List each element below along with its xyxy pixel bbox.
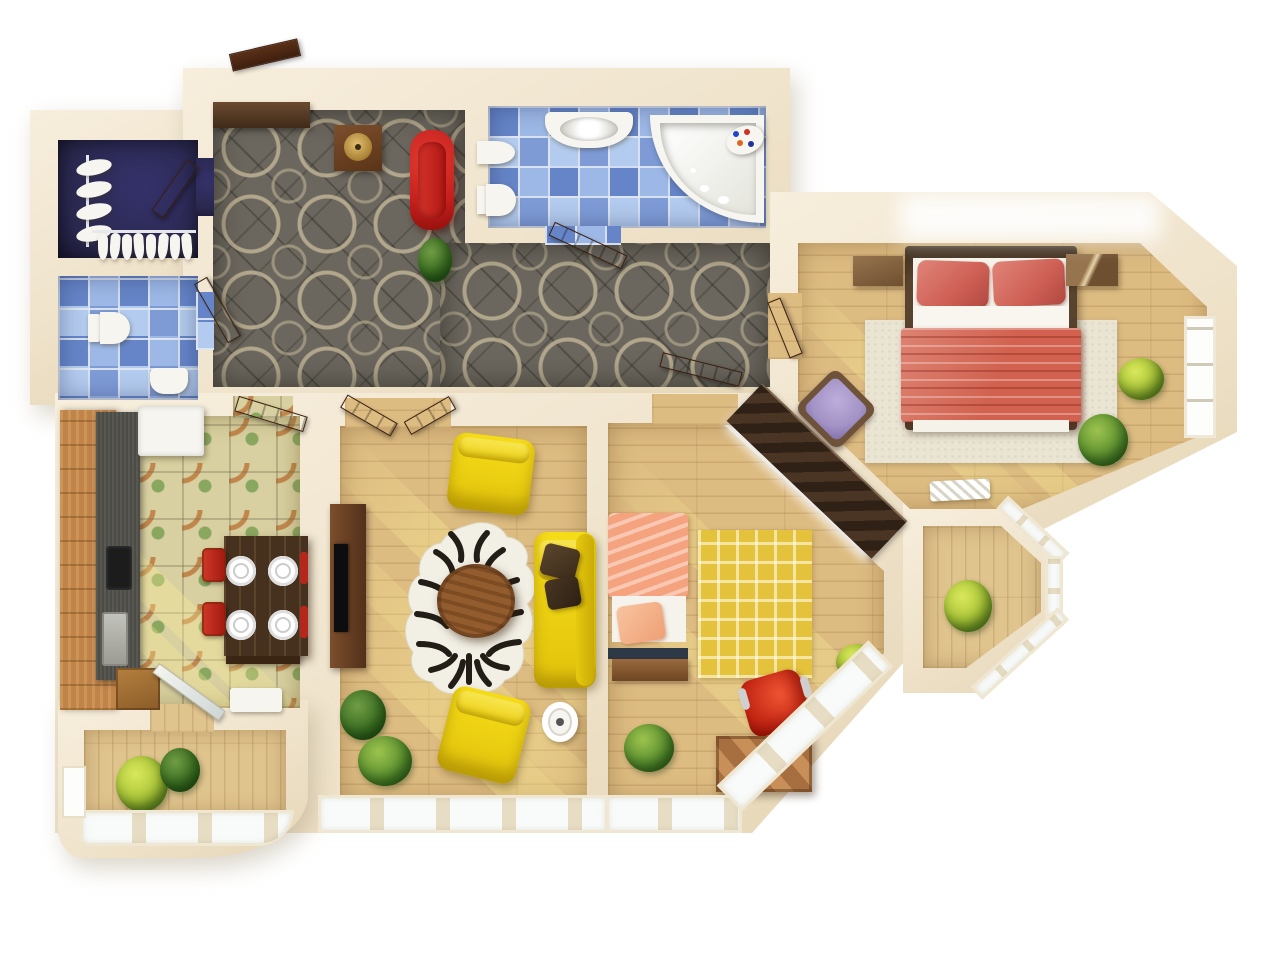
soap-dot-blue: [733, 131, 739, 137]
living-side-table-dot: [556, 718, 564, 726]
dining-plate: [268, 610, 298, 640]
dining-chair-red: [202, 602, 226, 636]
hall-plant: [418, 238, 452, 282]
kids-bed-blanket: [608, 513, 688, 598]
balcony-left-side-window: [62, 766, 86, 818]
closet-hanger: [122, 234, 132, 260]
balcony-right-window-2: [1045, 556, 1063, 618]
kids-bed-dark-rail: [608, 648, 688, 659]
closet-rail: [92, 230, 196, 233]
tv: [334, 544, 348, 632]
bed-foot-sheet: [913, 420, 1069, 432]
wc-toilet-tank: [88, 314, 100, 342]
hall-red-bench-seat: [418, 142, 446, 218]
dining-plate: [226, 556, 256, 586]
bathroom-tub-bubble: [690, 168, 696, 173]
living-plant: [340, 690, 386, 740]
bed-pillow: [992, 258, 1066, 308]
kids-bed-pillow: [616, 601, 667, 645]
kitchen-white-basin: [230, 688, 282, 712]
bathroom-tub-bubble: [718, 196, 729, 204]
bedroom-window-glow: [900, 194, 1160, 240]
nightstand-left: [853, 256, 903, 286]
bedroom-window: [1184, 316, 1216, 438]
living-room-windows: [318, 795, 608, 833]
entrance-door: [229, 38, 301, 71]
bedroom-plant-green: [1078, 414, 1128, 466]
dining-plate: [268, 556, 298, 586]
dining-chair-red: [202, 548, 226, 582]
bed-sheet-fold: [913, 306, 1069, 328]
dining-chair-red: [300, 552, 308, 584]
soap-dot-orange: [737, 140, 743, 146]
soap-dot-red: [744, 129, 750, 135]
closet-hanger: [170, 234, 180, 260]
soap-dot-navy: [748, 141, 754, 147]
dining-chair-red: [300, 606, 308, 638]
kids-room-windows: [606, 795, 742, 833]
doorway-kids: [652, 394, 738, 425]
kids-rug-yellow: [698, 530, 812, 678]
hall-brass-bowl-center: [355, 144, 361, 150]
living-round-table: [437, 564, 515, 638]
kids-bed-foot-shelf: [612, 659, 688, 681]
dining-plate: [226, 610, 256, 640]
bedroom-floor-grate: [930, 478, 991, 501]
floor-plan-render: [0, 0, 1280, 960]
closet-hanger: [98, 234, 108, 260]
kitchen-cooktop: [106, 546, 132, 590]
balcony-left-windows: [80, 810, 294, 846]
wc-sink: [150, 368, 188, 394]
balcony-right-plant: [944, 580, 992, 632]
kitchen-lower-cabinet: [116, 668, 160, 710]
hall-cabinet: [213, 102, 310, 128]
kitchen-sink: [102, 612, 128, 666]
closet-hanger: [146, 234, 156, 260]
bathroom-vanity-basin: [560, 117, 618, 141]
balcony-left-plant-green: [160, 748, 200, 792]
hall-floor-horizontal: [440, 243, 770, 387]
bathroom-bidet: [477, 141, 515, 164]
living-armchair-top: [446, 431, 537, 516]
bathroom-tub-bubble: [700, 185, 709, 192]
bed-blanket: [901, 328, 1081, 422]
nightstand-right: [1066, 254, 1118, 286]
living-plant: [358, 736, 412, 786]
kitchen-fridge: [138, 406, 204, 456]
bedroom-plant-yellow: [1118, 358, 1164, 400]
bed-pillow: [916, 260, 990, 308]
sofa-pillow-brown: [544, 575, 583, 610]
kids-plant: [624, 724, 674, 772]
